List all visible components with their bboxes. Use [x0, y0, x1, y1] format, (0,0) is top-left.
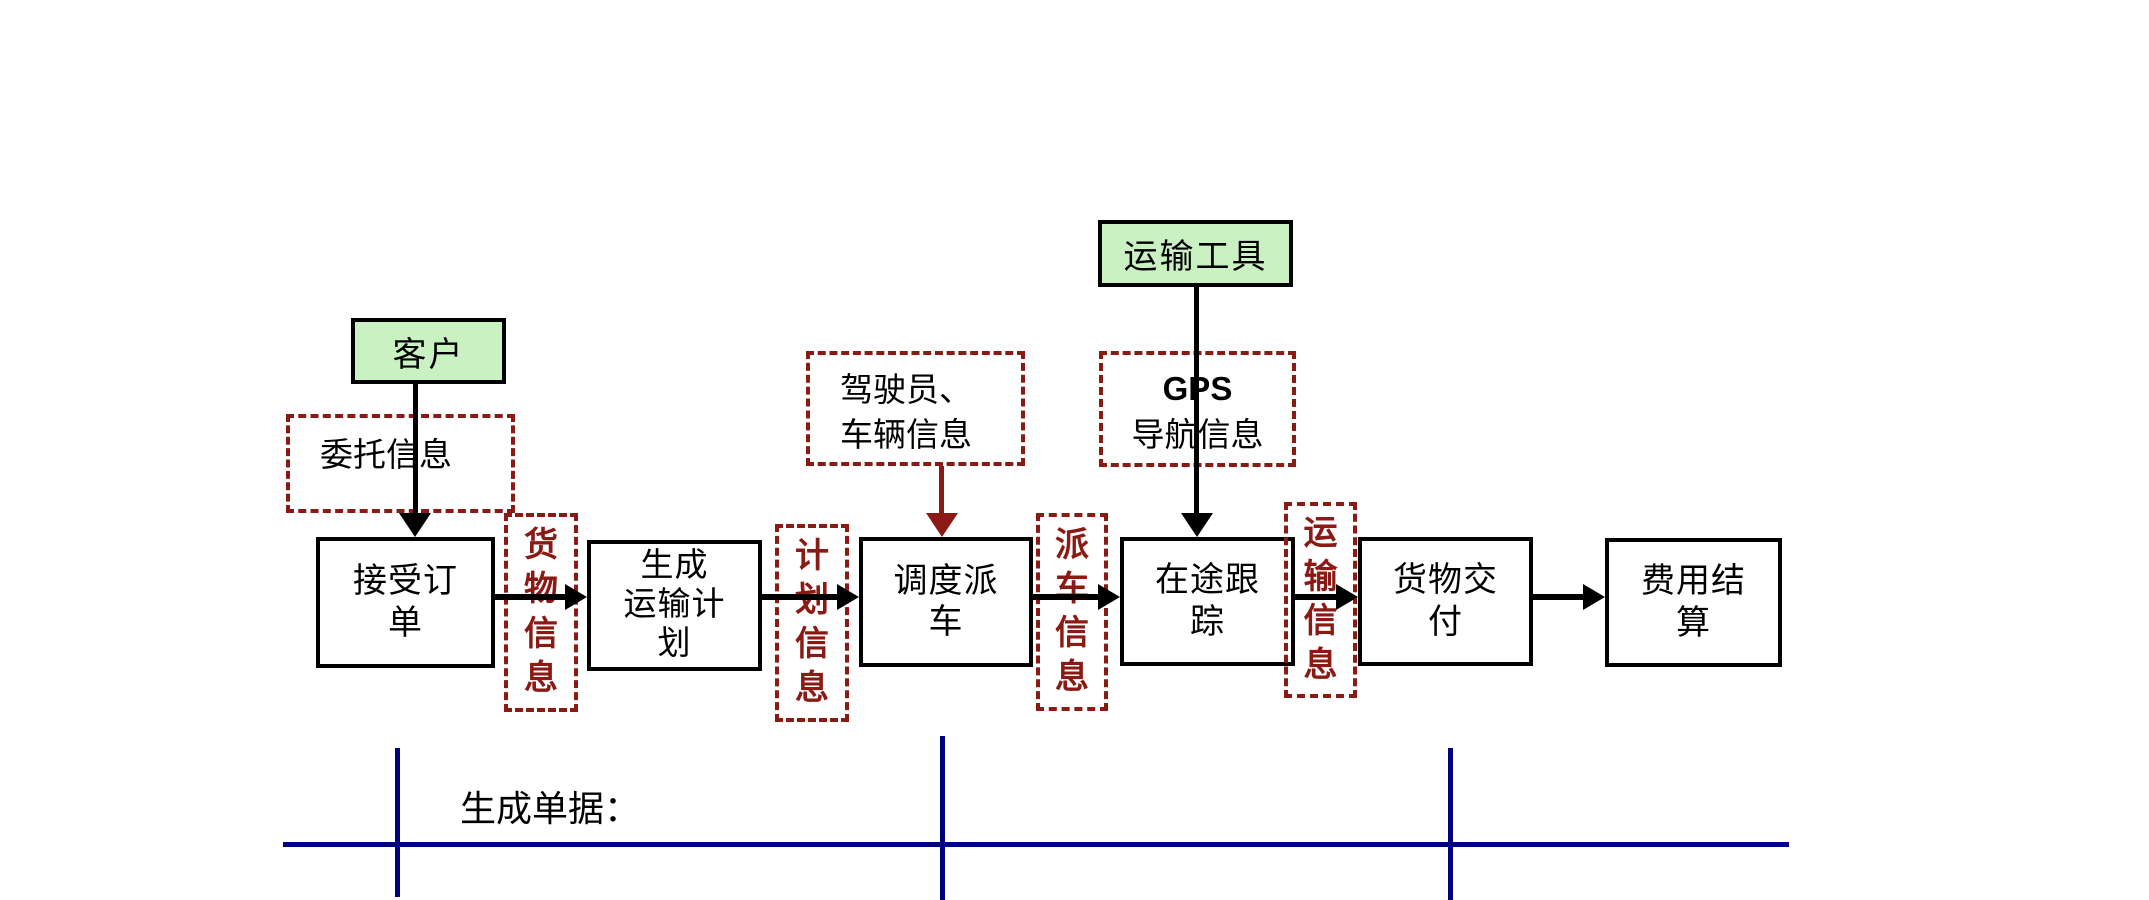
flow-label-goods-info: 货物信息	[504, 513, 578, 712]
flow-label-dispatch-info-text: 派车信息	[1054, 524, 1091, 701]
step-settlement: 费用结 算	[1605, 538, 1782, 667]
arrow-customer-to-accept-head-icon	[399, 513, 431, 537]
step-settlement-line2: 算	[1676, 603, 1711, 644]
step-accept-order-line1: 接受订	[353, 561, 458, 602]
flow-label-dispatch-info: 派车信息	[1036, 513, 1108, 711]
arrow-tracking-to-delivery-line	[1295, 594, 1340, 600]
step-make-plan-line3: 划	[658, 625, 692, 664]
info-entrust-label: 委托信息	[290, 418, 511, 479]
entity-customer: 客户	[351, 318, 506, 384]
flow-label-transport-info-text: 运输信息	[1302, 512, 1339, 689]
logistics-flowchart: 客户 运输工具 委托信息 驾驶员、 车辆信息 GPS 导航信息 接受订 单 生成…	[0, 0, 2149, 900]
arrow-vehicle-to-tracking-line	[1194, 287, 1199, 517]
info-driver-line1: 驾驶员、	[810, 355, 1021, 414]
footer-generate-documents-label: 生成单据：	[460, 780, 640, 832]
arrow-accept-to-plan-head-icon	[565, 584, 587, 610]
footer-vertical-line-3	[1448, 748, 1453, 900]
info-box-entrust: 委托信息	[286, 414, 515, 513]
info-driver-line2: 车辆信息	[810, 414, 1021, 459]
arrow-driver-to-dispatch-head-icon	[926, 513, 958, 537]
entity-vehicle-label: 运输工具	[1124, 229, 1268, 278]
arrow-driver-to-dispatch-line	[939, 466, 944, 516]
arrow-tracking-to-delivery-head-icon	[1336, 584, 1358, 610]
step-delivery-line1: 货物交	[1393, 560, 1498, 601]
arrow-vehicle-to-tracking-head-icon	[1181, 513, 1213, 537]
step-make-plan-line1: 生成	[641, 547, 709, 586]
entity-customer-label: 客户	[393, 327, 465, 376]
step-dispatch: 调度派 车	[859, 537, 1033, 667]
entity-vehicle: 运输工具	[1098, 220, 1293, 287]
arrow-dispatch-to-tracking-head-icon	[1098, 584, 1120, 610]
flow-label-goods-info-text: 货物信息	[523, 524, 560, 701]
step-dispatch-line1: 调度派	[894, 561, 999, 602]
step-accept-order-line2: 单	[388, 603, 423, 644]
step-settlement-line1: 费用结	[1641, 561, 1746, 602]
flow-label-plan-info: 计划信息	[775, 524, 849, 722]
step-accept-order: 接受订 单	[316, 537, 495, 668]
footer-vertical-line-2	[940, 736, 945, 900]
footer-vertical-line-1	[395, 748, 400, 897]
arrow-delivery-to-settlement-head-icon	[1583, 584, 1605, 610]
flow-label-plan-info-text: 计划信息	[794, 535, 831, 712]
arrow-accept-to-plan-line	[495, 594, 569, 600]
arrow-plan-to-dispatch-head-icon	[837, 584, 859, 610]
step-delivery: 货物交 付	[1358, 537, 1533, 666]
step-delivery-line2: 付	[1428, 602, 1463, 643]
arrow-delivery-to-settlement-line	[1533, 594, 1587, 600]
step-tracking: 在途跟 踪	[1120, 537, 1295, 666]
step-tracking-line2: 踪	[1190, 602, 1225, 643]
info-box-driver-vehicle: 驾驶员、 车辆信息	[806, 351, 1025, 466]
step-tracking-line1: 在途跟	[1155, 560, 1260, 601]
step-make-plan-line2: 运输计	[624, 586, 726, 625]
step-make-plan: 生成 运输计 划	[587, 540, 762, 671]
step-dispatch-line2: 车	[929, 602, 964, 643]
arrow-customer-to-accept-line	[413, 384, 418, 516]
arrow-plan-to-dispatch-line	[762, 594, 841, 600]
footer-horizontal-line	[283, 842, 1789, 847]
arrow-dispatch-to-tracking-line	[1033, 594, 1102, 600]
